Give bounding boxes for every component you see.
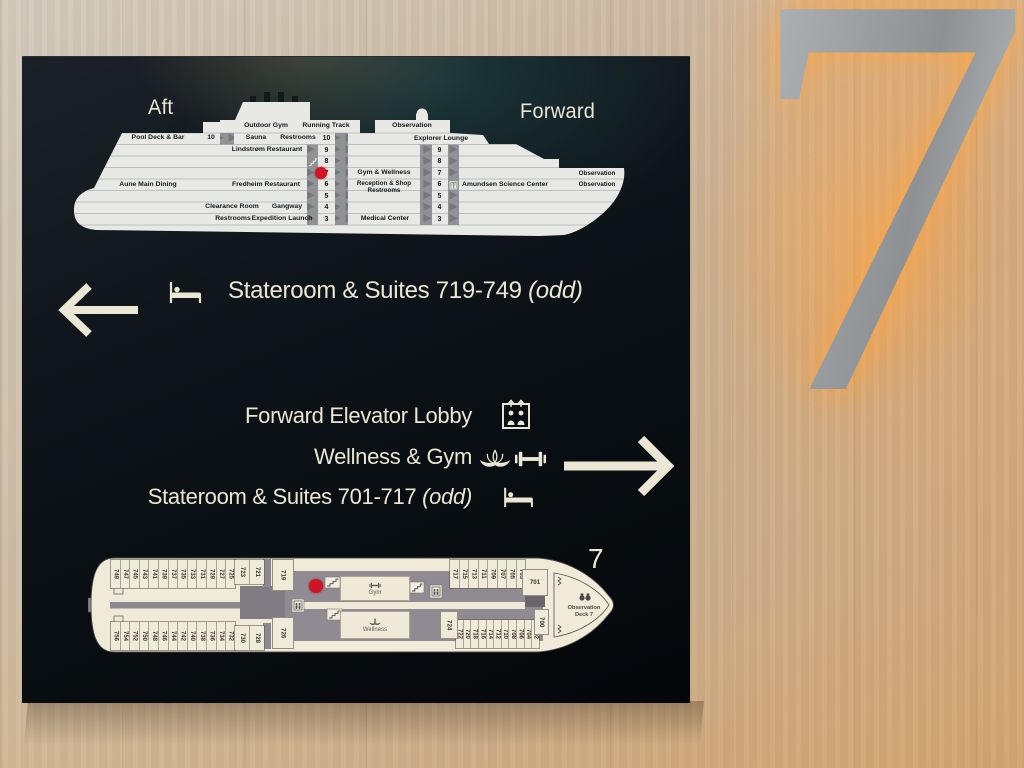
cabin-number: 738 bbox=[196, 622, 206, 650]
label-fredheim: Fredheim Restaurant bbox=[232, 182, 300, 189]
cabin-number: 744 bbox=[168, 622, 178, 650]
cabin-number: 714 bbox=[486, 620, 494, 648]
aft-cabins-top: 749747745743741739737735733731729727725 bbox=[110, 559, 236, 589]
deck-number: 3 bbox=[432, 214, 447, 226]
label-medical: Medical Center bbox=[361, 216, 409, 223]
stateroom-aft-odd: (odd) bbox=[528, 277, 583, 304]
cabin-number: 710 bbox=[501, 620, 509, 648]
deck-number: 4 bbox=[432, 202, 447, 214]
cabin-number: 746 bbox=[158, 622, 168, 650]
cabin-number: 728 bbox=[249, 626, 264, 650]
gym-label: Gym bbox=[369, 590, 382, 596]
midship-corridor bbox=[302, 602, 525, 609]
bow-cabins-bottom: 722720718716714712710708706704702 bbox=[455, 619, 540, 649]
wellness-room: Wellness bbox=[340, 611, 410, 639]
observation-deck-label: Observation Deck 7 bbox=[562, 605, 606, 618]
deck-number: 6 bbox=[319, 179, 334, 191]
stairs-icon bbox=[308, 157, 318, 167]
cabin-number: 752 bbox=[129, 622, 139, 650]
cabin-number: 734 bbox=[216, 622, 226, 650]
cabin-number: 735 bbox=[177, 560, 187, 588]
cabin-number: 730 bbox=[235, 626, 249, 650]
cabin-number: 720 bbox=[463, 620, 471, 648]
aft-corridor bbox=[110, 602, 240, 609]
cabin-number: 713 bbox=[468, 560, 478, 588]
gym-room: Gym bbox=[340, 576, 410, 601]
lotus-icon bbox=[478, 448, 512, 470]
deck-number: 6 bbox=[432, 179, 447, 191]
cabin-number: 723 bbox=[235, 560, 249, 584]
label-aune: Aune Main Dining bbox=[119, 182, 176, 189]
label-observation-upper: Observation bbox=[579, 171, 616, 177]
cabin-number: 737 bbox=[168, 560, 178, 588]
label-observation-lower: Observation bbox=[579, 182, 616, 188]
deck-numeral-7: 7 bbox=[742, 0, 1024, 504]
label-explorer-lounge: Explorer Lounge bbox=[414, 136, 468, 143]
cabin-726: 726 bbox=[272, 617, 294, 649]
cabin-number: 715 bbox=[459, 560, 469, 588]
funnel bbox=[235, 92, 310, 120]
cabin-number: 717 bbox=[450, 560, 459, 588]
stairs-icon bbox=[325, 577, 340, 588]
wellness-label: Wellness bbox=[363, 627, 387, 633]
label-pool-deck: Pool Deck & Bar bbox=[132, 135, 185, 142]
cabin-number: 721 bbox=[249, 560, 264, 584]
wellness-gym-text: Wellness & Gym bbox=[314, 444, 472, 470]
aft-cabins-bottom: 756754752750748746744742740738736734732 bbox=[110, 621, 236, 651]
cabin-number: 705 bbox=[506, 560, 516, 588]
deck-number: 5 bbox=[432, 191, 447, 203]
stateroom-fwd-text: Stateroom & Suites 701-717 (odd) bbox=[148, 484, 472, 510]
cabin-number: 754 bbox=[120, 622, 130, 650]
cabin-number: 708 bbox=[508, 620, 516, 648]
cabin-number: 743 bbox=[139, 560, 149, 588]
label-lindstrom: Lindstrøm Restaurant bbox=[232, 147, 303, 154]
cabin-number: 718 bbox=[470, 620, 478, 648]
cabin-number: 716 bbox=[478, 620, 486, 648]
deck-plan-diagram: 749747745743741739737735733731729727725 … bbox=[88, 557, 623, 655]
cabin-number: 706 bbox=[516, 620, 524, 648]
cabin-number: 729 bbox=[206, 560, 216, 588]
deck-number: 3 bbox=[319, 214, 334, 226]
aft-suites-top: 723721 bbox=[234, 559, 265, 585]
lotus-icon bbox=[368, 618, 382, 626]
label-expedition: Expedition Launch bbox=[252, 216, 313, 223]
cabin-724: 724 bbox=[440, 611, 458, 639]
board-shadow bbox=[24, 701, 704, 745]
deck-number: 7 bbox=[432, 168, 447, 180]
label-aft-deck-number: 10 bbox=[207, 135, 215, 142]
deck-number: 8 bbox=[432, 156, 447, 168]
label-restrooms-10: Restrooms bbox=[280, 135, 316, 142]
deck-number: 5 bbox=[319, 191, 334, 203]
elevator-icon bbox=[292, 599, 304, 612]
wayfinding-sign-board: Aft Forward Outdoor Gym Running Track Ob… bbox=[22, 56, 690, 703]
bow-cabins-top: 717715713711709707705703 bbox=[449, 559, 526, 589]
label-reception-line2: Restrooms bbox=[368, 188, 401, 194]
cabin-number: 704 bbox=[524, 620, 532, 648]
observation-line2: Deck 7 bbox=[562, 612, 606, 619]
label-amundsen: Amundsen Science Center bbox=[462, 182, 548, 189]
deck-number: 8 bbox=[319, 156, 334, 168]
cabin-number: 741 bbox=[148, 560, 158, 588]
you-are-here-marker bbox=[309, 579, 323, 593]
deck-number: 9 bbox=[319, 145, 334, 157]
cabin-number: 707 bbox=[497, 560, 507, 588]
cabin-number: 749 bbox=[111, 560, 120, 588]
label-gym-wellness: Gym & Wellness bbox=[357, 170, 410, 177]
left-deck-number-column: 109876543 bbox=[319, 133, 334, 225]
cabin-number: 742 bbox=[177, 622, 187, 650]
stateroom-fwd-label: Stateroom & Suites 701-717 bbox=[148, 484, 417, 509]
cabin-719: 719 bbox=[272, 559, 294, 591]
you-are-here-marker bbox=[315, 167, 327, 179]
cabin-number: 748 bbox=[148, 622, 158, 650]
cabin-number: 750 bbox=[139, 622, 149, 650]
cabin-number: 712 bbox=[493, 620, 501, 648]
left-arrow-icon bbox=[58, 281, 140, 339]
stateroom-aft-text: Stateroom & Suites 719-749 (odd) bbox=[228, 277, 583, 305]
right-arrow-icon bbox=[562, 433, 674, 499]
label-observation-top: Observation bbox=[392, 123, 432, 130]
cabin-number: 747 bbox=[120, 560, 130, 588]
stateroom-aft-label: Stateroom & Suites 719-749 bbox=[228, 277, 522, 304]
mast-dome bbox=[416, 109, 428, 121]
dumbbell-icon bbox=[368, 582, 382, 589]
cabin-700: 700 bbox=[534, 609, 549, 635]
deck-number: 9 bbox=[432, 145, 447, 157]
cabin-number: 756 bbox=[111, 622, 120, 650]
right-deck-number-column: 9876543 bbox=[432, 145, 447, 226]
cabin-701: 701 bbox=[522, 569, 548, 596]
forward-title: Forward bbox=[520, 100, 595, 124]
aft-suites-bottom: 730728 bbox=[234, 625, 265, 651]
label-running-track: Running Track bbox=[302, 123, 349, 130]
cabin-number: 731 bbox=[196, 560, 206, 588]
observation-line1: Observation bbox=[562, 605, 606, 612]
stateroom-fwd-odd: (odd) bbox=[422, 484, 472, 509]
cabin-number: 727 bbox=[216, 560, 226, 588]
aft-title: Aft bbox=[148, 96, 173, 120]
bed-icon bbox=[168, 279, 204, 305]
label-clearance: Clearance Room bbox=[205, 204, 259, 211]
label-sauna: Sauna bbox=[246, 135, 266, 142]
cabin-number: 711 bbox=[478, 560, 488, 588]
forward-elevator-lobby-text: Forward Elevator Lobby bbox=[245, 403, 472, 429]
deck-number: 4 bbox=[319, 202, 334, 214]
stairs-icon bbox=[410, 582, 424, 593]
elevator-icon bbox=[501, 398, 531, 430]
label-restrooms-3: Restrooms bbox=[215, 216, 251, 223]
deck-number: 10 bbox=[319, 133, 334, 145]
cabin-number: 739 bbox=[158, 560, 168, 588]
ship-profile-diagram: Aft Forward Outdoor Gym Running Track Ob… bbox=[70, 86, 645, 251]
cabin-number: 736 bbox=[206, 622, 216, 650]
elevator-icon bbox=[430, 585, 442, 598]
bed-icon bbox=[502, 485, 536, 509]
cabin-number: 740 bbox=[187, 622, 197, 650]
cabin-number: 745 bbox=[129, 560, 139, 588]
cabin-number: 733 bbox=[187, 560, 197, 588]
elevator-icon bbox=[449, 181, 458, 191]
label-gangway: Gangway bbox=[272, 204, 302, 211]
dumbbell-icon bbox=[514, 449, 547, 469]
label-outdoor-gym: Outdoor Gym bbox=[244, 123, 288, 130]
cabin-number: 709 bbox=[487, 560, 497, 588]
